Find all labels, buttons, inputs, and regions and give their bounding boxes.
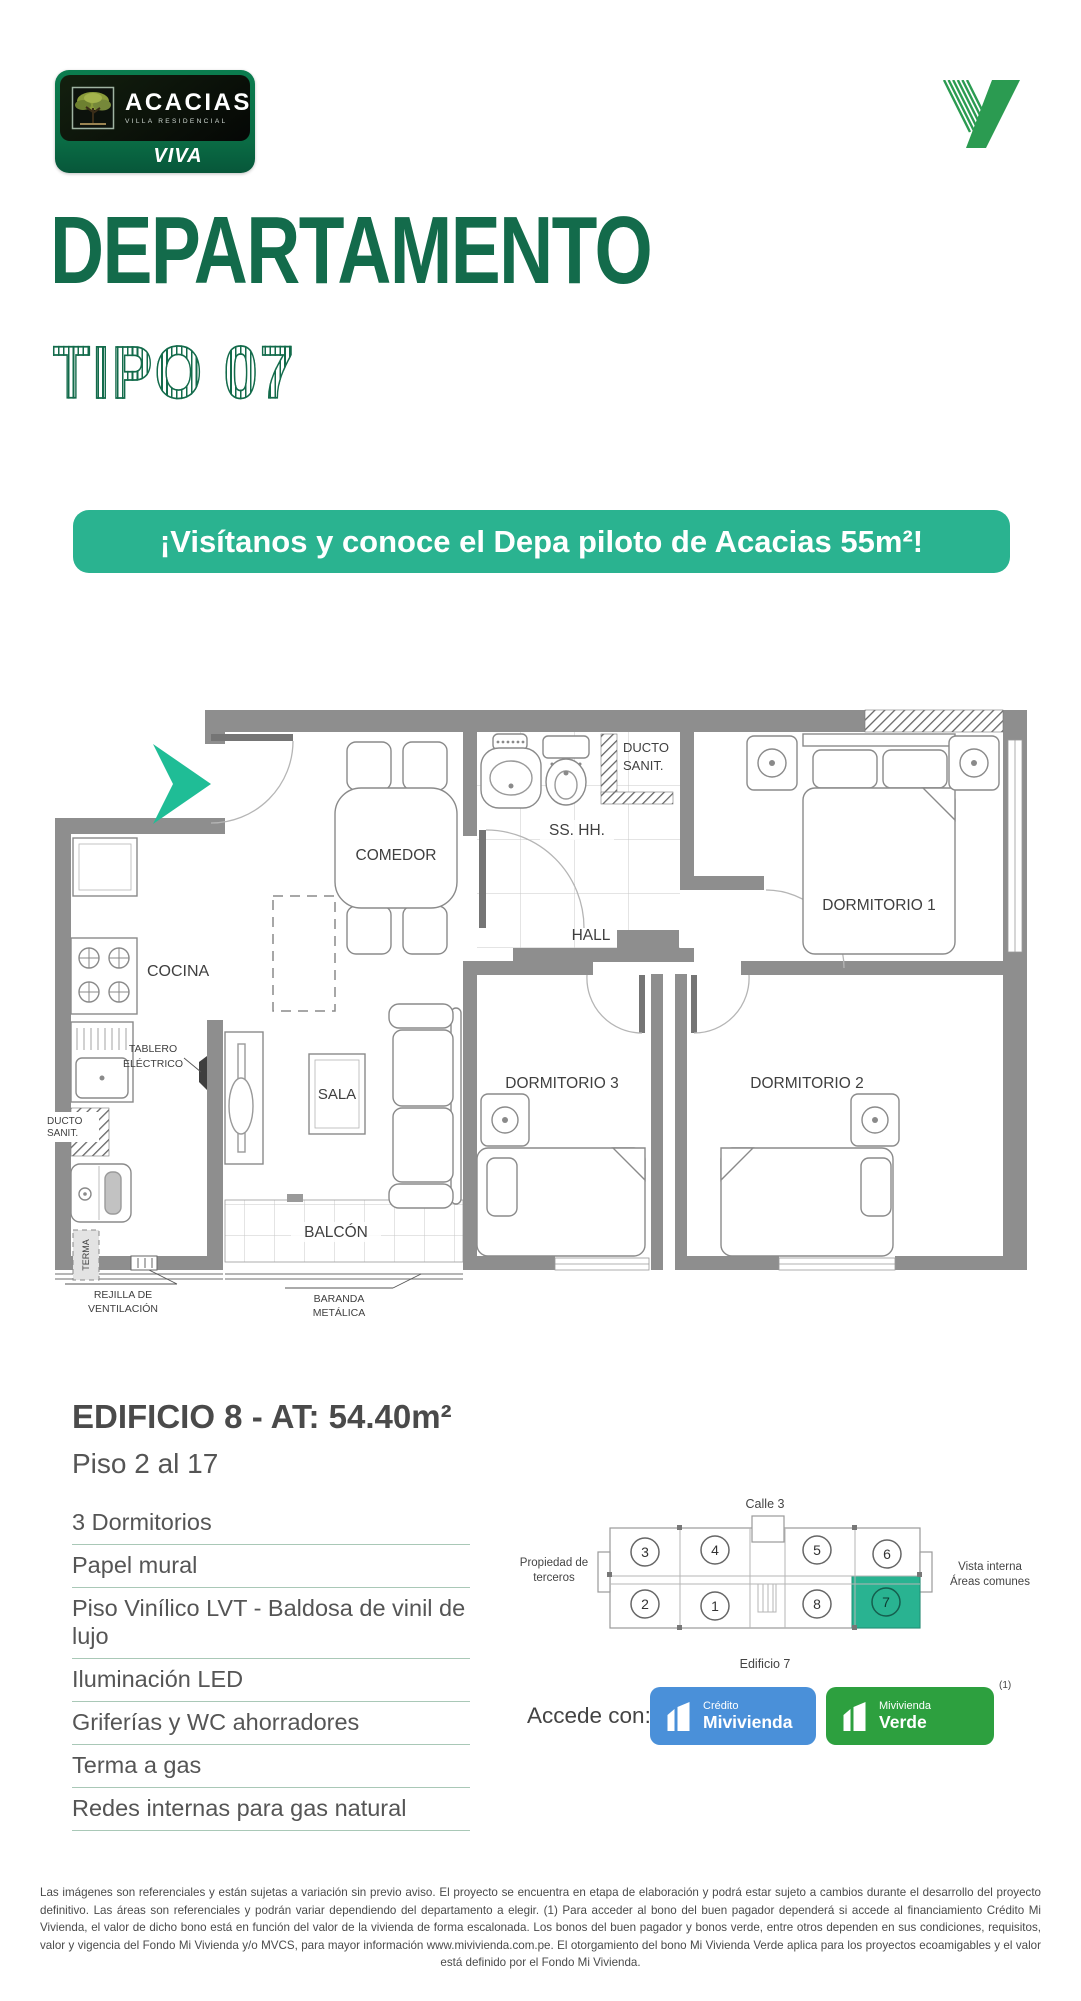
room-label-dormitorio1: DORMITORIO 1 [822,897,935,914]
viva-v-icon [940,80,1024,152]
street-label: Calle 3 [746,1497,785,1511]
room-label-comedor: COMEDOR [356,847,437,864]
electric-panel [199,1056,207,1090]
sofa-cushion [393,1030,453,1106]
unit-number: 3 [641,1544,649,1560]
right-label-2: Áreas comunes [950,1575,1030,1588]
page-title: DEPARTAMENTO [50,196,651,306]
chair [347,906,391,954]
toilet-tank [543,736,589,758]
pillow [813,750,877,788]
rejilla-label-1: REJILLA DE [94,1289,152,1301]
duct-left-label-1: DUCTO [47,1116,83,1127]
viva-badge: VIVA [55,142,255,170]
mivivienda-house-icon [666,1701,693,1732]
terma-label: TERMA [81,1239,91,1271]
toilet-bowl [546,759,586,805]
promo-banner: ¡Visítanos y conoce el Depa piloto de Ac… [73,510,1010,573]
entrance-arrow-icon [153,744,211,824]
sofa-arm [389,1004,453,1028]
vent-grille [131,1256,157,1270]
tablero-label-2: ELÉCTRICO [123,1057,183,1070]
pillow [861,1158,891,1216]
rejilla-label-2: VENTILACIÓN [88,1302,158,1315]
unit-number: 8 [813,1596,821,1612]
room-label-sshh: SS. HH. [549,822,605,839]
badge-line1: Mivivienda [879,1701,931,1712]
room-label-cocina: COCINA [147,963,210,980]
building-title: EDIFICIO 8 - AT: 54.40m² [72,1398,452,1436]
feature-item: Iluminación LED [72,1659,470,1702]
feature-item: Terma a gas [72,1745,470,1788]
keyplan: 3 4 5 6 2 1 8 7 Calle 3 Propiedad de ter… [500,1488,1060,1683]
room-label-sala: SALA [318,1086,356,1103]
logo-words: ACACIAS VILLA RESIDENCIAL [125,91,252,125]
right-label-1: Vista interna [958,1561,1022,1573]
stove [71,938,137,1014]
left-label-1: Propiedad de [520,1557,588,1569]
chair [403,906,447,954]
kitchen-cabinet [73,838,137,896]
feature-item: Redes internas para gas natural [72,1788,470,1831]
double-bed [803,788,955,954]
building-floors: Piso 2 al 17 [72,1448,218,1480]
building7-label: Edificio 7 [740,1657,791,1671]
chair [347,742,391,790]
badge-line2: Verde [879,1714,931,1732]
room-label-dormitorio3: DORMITORIO 3 [505,1075,618,1092]
feature-item: Piso Vinílico LVT - Baldosa de vinil de … [72,1588,470,1659]
pillow [883,750,947,788]
tablero-label-1: TABLERO [129,1043,177,1055]
badge-text: Mivivienda Verde [879,1701,931,1732]
room-label-dormitorio2: DORMITORIO 2 [750,1075,863,1092]
sofa-arm [389,1184,453,1208]
pillow [487,1158,517,1216]
feature-item: Papel mural [72,1545,470,1588]
unit-number: 1 [711,1598,719,1614]
badge-line2: Mivivienda [703,1714,792,1732]
unit-number-highlighted: 7 [882,1594,890,1610]
tree-icon [71,86,115,130]
access-label: Accede con: [527,1703,651,1729]
unit-number: 5 [813,1542,821,1558]
fridge-space [273,896,335,1011]
room-label-balcon: BALCÓN [304,1224,368,1241]
acacias-logo: ACACIAS VILLA RESIDENCIAL VIVA [55,70,255,173]
credito-mivivienda-badge: Crédito Mivivienda [650,1687,816,1745]
floorplan: COMEDOR SS. HH. DUCTO SANIT. DORMITORIO … [35,678,1040,1323]
headboard [803,734,955,746]
badge-footnote-marker: (1) [999,1680,1011,1691]
logo-subtitle: VILLA RESIDENCIAL [125,118,252,125]
badge-text: Crédito Mivivienda [703,1701,792,1732]
features-list: 3 Dormitorios Papel mural Piso Vinílico … [72,1502,470,1831]
duct-top-label-2: SANIT. [623,758,663,773]
baranda-label-1: BARANDA [314,1293,365,1305]
feature-item: 3 Dormitorios [72,1502,470,1545]
chair [403,742,447,790]
room-label-hall: HALL [572,927,611,944]
duct-left-label-2: SANIT. [47,1128,78,1139]
sofa-cushion [393,1108,453,1182]
page-subtitle: TIPO 07 [53,330,296,415]
baranda-label-2: METÁLICA [313,1306,366,1319]
unit-number: 4 [711,1542,719,1558]
left-label-2: terceros [533,1572,575,1584]
duct-top-label-1: DUCTO [623,740,669,755]
feature-item: Griferías y WC ahorradores [72,1702,470,1745]
unit-number: 2 [641,1596,649,1612]
mivivienda-house-icon [842,1701,869,1732]
legal-disclaimer: Las imágenes son referenciales y están s… [40,1884,1041,1972]
flyer-page: ACACIAS VILLA RESIDENCIAL VIVA DEPARTAME… [0,0,1081,2001]
logo-title: ACACIAS [125,91,252,115]
badge-line1: Crédito [703,1701,792,1712]
acacias-logo-panel: ACACIAS VILLA RESIDENCIAL [60,75,250,141]
mivivienda-verde-badge: Mivivienda Verde [826,1687,994,1745]
unit-number: 6 [883,1546,891,1562]
